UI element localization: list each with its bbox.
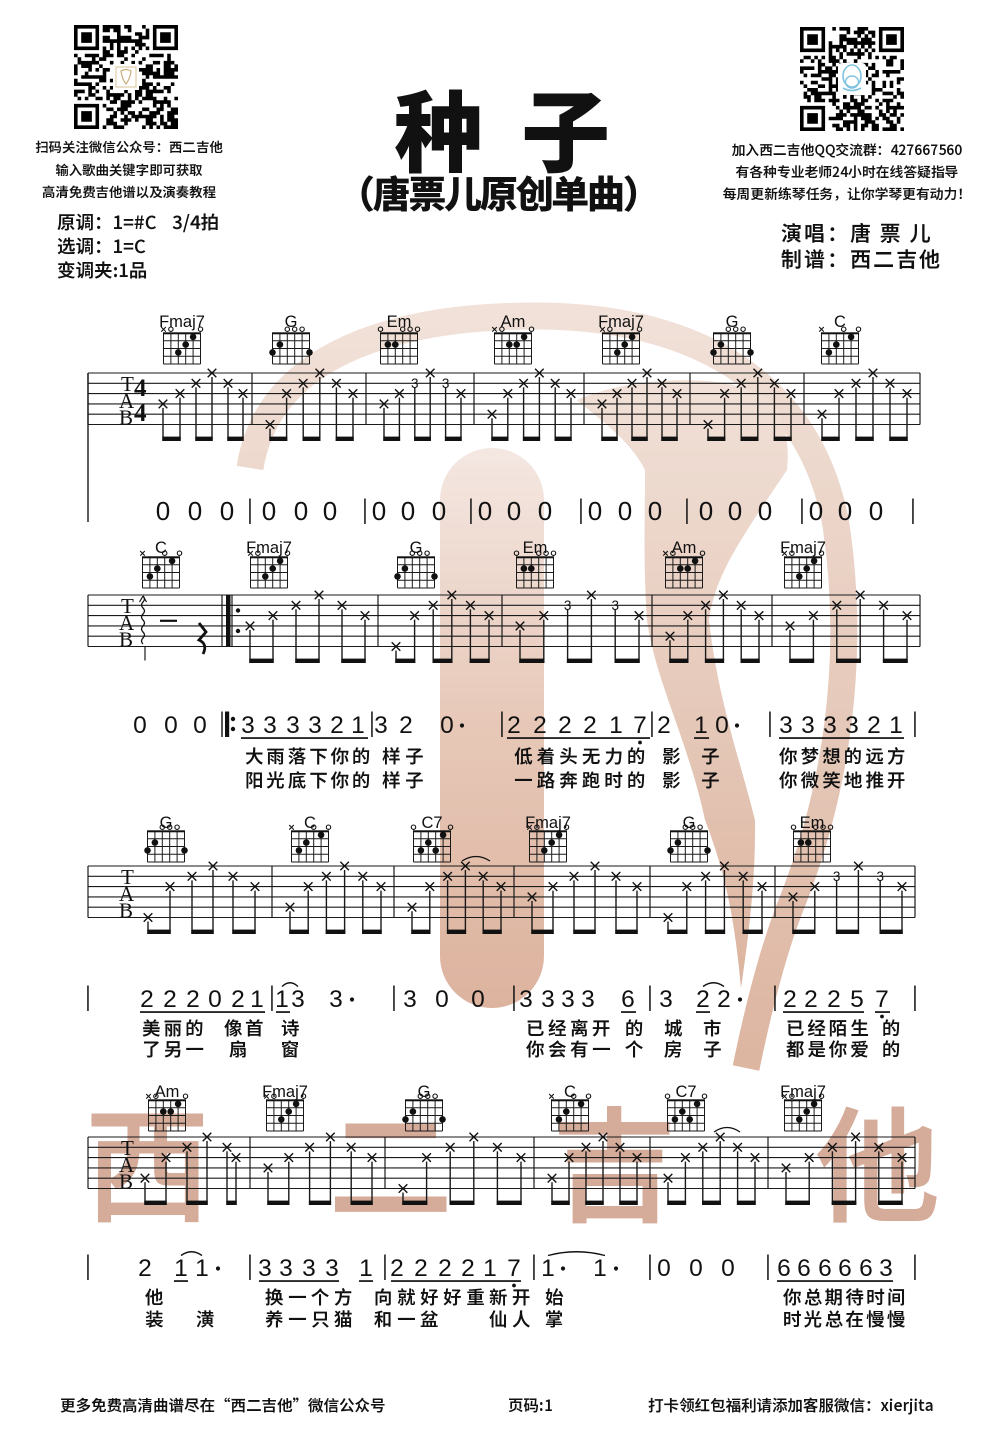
- svg-text:3: 3: [779, 712, 793, 739]
- svg-text:G: G: [726, 313, 739, 331]
- svg-text:奔: 奔: [559, 767, 578, 793]
- svg-text:2: 2: [414, 1255, 428, 1282]
- svg-text:你: 你: [829, 1036, 848, 1062]
- svg-text:2: 2: [330, 712, 344, 739]
- svg-text:时: 时: [783, 1306, 802, 1332]
- svg-text:光: 光: [266, 767, 285, 793]
- svg-text:会: 会: [548, 1036, 567, 1062]
- svg-text:阳: 阳: [245, 767, 264, 793]
- svg-text:你: 你: [779, 767, 798, 793]
- svg-text:好: 好: [443, 1284, 462, 1310]
- svg-text:0: 0: [507, 496, 521, 526]
- svg-text:C: C: [155, 539, 167, 557]
- svg-text:0: 0: [471, 986, 485, 1013]
- svg-text:3/4拍: 3/4拍: [172, 209, 219, 235]
- svg-text:C7: C7: [675, 1083, 696, 1101]
- svg-text:0: 0: [262, 496, 276, 526]
- svg-text:3: 3: [286, 712, 300, 739]
- svg-text:加入西二吉他QQ交流群：427667560: 加入西二吉他QQ交流群：427667560: [731, 139, 962, 159]
- svg-text:页码:1: 页码:1: [508, 1394, 553, 1416]
- svg-text:1: 1: [694, 712, 708, 739]
- svg-text:3: 3: [541, 986, 555, 1013]
- svg-text:想: 想: [822, 743, 841, 769]
- svg-text:笑: 笑: [822, 767, 841, 793]
- svg-text:窗: 窗: [281, 1036, 300, 1062]
- svg-text:爱: 爱: [850, 1036, 869, 1062]
- svg-text:0: 0: [193, 712, 207, 739]
- svg-text:6: 6: [838, 1255, 852, 1282]
- svg-text:有: 有: [570, 1036, 589, 1062]
- svg-text:扫码关注微信公众号：西二吉他: 扫码关注微信公众号：西二吉他: [35, 136, 222, 156]
- svg-text:2: 2: [657, 712, 671, 739]
- svg-text:开: 开: [887, 767, 906, 793]
- svg-text:你: 你: [331, 743, 350, 769]
- svg-text:的: 的: [844, 743, 863, 769]
- svg-text:远: 远: [865, 743, 884, 769]
- svg-text:一: 一: [514, 767, 533, 793]
- svg-text:2: 2: [583, 712, 597, 739]
- svg-text:的: 的: [882, 1036, 901, 1062]
- svg-text:头: 头: [559, 743, 578, 769]
- svg-text:0: 0: [758, 496, 772, 526]
- svg-text:1: 1: [174, 1255, 188, 1282]
- svg-text:人: 人: [512, 1306, 531, 1332]
- svg-text:下: 下: [309, 743, 328, 769]
- svg-text:7: 7: [633, 712, 647, 739]
- svg-text:7: 7: [875, 986, 889, 1013]
- svg-text:的: 的: [352, 767, 371, 793]
- svg-text:1: 1: [250, 986, 264, 1013]
- svg-text:都: 都: [786, 1036, 805, 1062]
- svg-text:低: 低: [514, 743, 533, 769]
- svg-text:你: 你: [779, 743, 798, 769]
- svg-text:0: 0: [188, 496, 202, 526]
- svg-text:0: 0: [809, 496, 823, 526]
- svg-text:时: 时: [604, 767, 623, 793]
- svg-text:梦: 梦: [801, 743, 820, 769]
- svg-text:你: 你: [331, 767, 350, 793]
- svg-text:慢: 慢: [866, 1306, 885, 1332]
- svg-text:2: 2: [696, 986, 710, 1013]
- svg-text:样: 样: [382, 743, 401, 769]
- svg-text:0: 0: [220, 496, 234, 526]
- svg-text:3: 3: [258, 1255, 272, 1282]
- svg-text:1: 1: [483, 1255, 497, 1282]
- svg-text:0: 0: [869, 496, 883, 526]
- svg-text:只: 只: [311, 1306, 330, 1332]
- svg-text:3: 3: [279, 1255, 293, 1282]
- svg-text:1: 1: [275, 986, 289, 1013]
- svg-text:推: 推: [865, 767, 884, 793]
- svg-text:影: 影: [662, 743, 681, 769]
- svg-text:0: 0: [208, 986, 222, 1013]
- svg-text:路: 路: [537, 767, 556, 793]
- svg-text:3: 3: [308, 712, 322, 739]
- svg-text:3: 3: [801, 712, 815, 739]
- svg-text:样: 样: [382, 767, 401, 793]
- svg-text:重: 重: [466, 1284, 485, 1310]
- svg-text:0: 0: [618, 496, 632, 526]
- svg-text:1: 1: [351, 712, 365, 739]
- svg-text:1: 1: [359, 1255, 373, 1282]
- svg-text:0: 0: [689, 1255, 703, 1282]
- svg-text:底: 底: [288, 767, 307, 793]
- svg-text:B: B: [119, 406, 133, 430]
- svg-text:4: 4: [134, 375, 147, 402]
- svg-text:0: 0: [728, 496, 742, 526]
- svg-text:6: 6: [797, 1255, 811, 1282]
- svg-text:另: 另: [164, 1036, 183, 1062]
- svg-text:子: 子: [405, 743, 424, 769]
- svg-text:在: 在: [845, 1306, 864, 1332]
- svg-text:3: 3: [374, 712, 388, 739]
- svg-text:和: 和: [374, 1306, 393, 1332]
- svg-text:仙: 仙: [489, 1306, 508, 1332]
- svg-text:无: 无: [582, 743, 601, 769]
- svg-text:C7: C7: [421, 814, 442, 832]
- svg-text:3: 3: [659, 986, 673, 1013]
- svg-text:0: 0: [715, 712, 729, 739]
- svg-text:方: 方: [887, 743, 906, 769]
- svg-text:猫: 猫: [334, 1306, 353, 1332]
- svg-text:个: 个: [625, 1036, 644, 1062]
- svg-text:7: 7: [507, 1255, 521, 1282]
- svg-text:3: 3: [403, 986, 417, 1013]
- svg-text:6: 6: [777, 1255, 791, 1282]
- svg-text:打卡领红包福利请添加客服微信：xierjita: 打卡领红包福利请添加客服微信：xierjita: [648, 1394, 934, 1416]
- svg-text:0: 0: [588, 496, 602, 526]
- svg-text:变调夹:1品: 变调夹:1品: [57, 257, 147, 283]
- svg-text:0: 0: [721, 1255, 735, 1282]
- svg-text:力: 力: [604, 743, 623, 769]
- svg-text:你: 你: [526, 1036, 545, 1062]
- svg-text:G: G: [410, 539, 423, 557]
- svg-text:1: 1: [609, 712, 623, 739]
- svg-text:有各种专业老师24小时在线答疑指导: 有各种专业老师24小时在线答疑指导: [736, 161, 959, 181]
- svg-text:慢: 慢: [887, 1306, 906, 1332]
- svg-text:0: 0: [323, 496, 337, 526]
- svg-text:2: 2: [533, 712, 547, 739]
- svg-text:0: 0: [657, 1255, 671, 1282]
- svg-text:的: 的: [627, 743, 646, 769]
- svg-text:选调：1=C: 选调：1=C: [57, 233, 146, 259]
- svg-text:0: 0: [838, 496, 852, 526]
- svg-text:C: C: [834, 313, 846, 331]
- svg-text:B: B: [119, 899, 133, 923]
- svg-text:0: 0: [164, 712, 178, 739]
- svg-text:潢: 潢: [196, 1306, 215, 1332]
- svg-text:B: B: [119, 1170, 133, 1194]
- svg-text:2: 2: [783, 986, 797, 1013]
- svg-text:装: 装: [145, 1306, 164, 1332]
- svg-text:3: 3: [325, 1255, 339, 1282]
- svg-text:0: 0: [133, 712, 147, 739]
- svg-text:养: 养: [265, 1306, 284, 1332]
- svg-text:光: 光: [804, 1306, 823, 1332]
- svg-text:2: 2: [138, 1255, 152, 1282]
- svg-text:3: 3: [561, 986, 575, 1013]
- svg-text:3: 3: [845, 712, 859, 739]
- svg-text:0: 0: [401, 496, 415, 526]
- svg-text:0: 0: [294, 496, 308, 526]
- svg-text:2: 2: [867, 712, 881, 739]
- svg-text:B: B: [119, 628, 133, 652]
- svg-text:更多免费高清曲谱尽在“西二吉他”微信公众号: 更多免费高清曲谱尽在“西二吉他”微信公众号: [60, 1394, 386, 1416]
- svg-text:落: 落: [288, 743, 307, 769]
- svg-text:一: 一: [288, 1306, 307, 1332]
- svg-text:子: 子: [701, 767, 720, 793]
- svg-text:2: 2: [558, 712, 572, 739]
- svg-text:0: 0: [435, 986, 449, 1013]
- svg-text:雨: 雨: [266, 743, 285, 769]
- svg-text:3: 3: [879, 1255, 893, 1282]
- svg-text:着: 着: [537, 743, 556, 769]
- svg-text:高清免费吉他谱以及演奏教程: 高清免费吉他谱以及演奏教程: [42, 181, 217, 201]
- svg-text:0: 0: [440, 712, 454, 739]
- svg-text:3: 3: [581, 986, 595, 1013]
- svg-text:2: 2: [717, 986, 731, 1013]
- svg-text:0: 0: [372, 496, 386, 526]
- svg-text:3: 3: [329, 986, 343, 1013]
- svg-text:一: 一: [185, 1036, 204, 1062]
- svg-text:是: 是: [807, 1036, 826, 1062]
- svg-text:4: 4: [134, 400, 147, 427]
- svg-text:3: 3: [519, 986, 533, 1013]
- svg-text:6: 6: [818, 1255, 832, 1282]
- svg-text:制谱：西二吉他: 制谱：西二吉他: [781, 244, 942, 274]
- svg-text:2: 2: [231, 986, 245, 1013]
- svg-text:一: 一: [592, 1036, 611, 1062]
- svg-text:掌: 掌: [545, 1306, 564, 1332]
- svg-text:1: 1: [593, 1255, 607, 1282]
- svg-text:2: 2: [390, 1255, 404, 1282]
- svg-text:Em: Em: [800, 814, 825, 832]
- svg-text:盆: 盆: [420, 1306, 439, 1332]
- svg-text:一: 一: [397, 1306, 416, 1332]
- svg-text:微: 微: [800, 767, 820, 793]
- svg-text:每周更新练琴任务，让你学琴更有动力！: 每周更新练琴任务，让你学琴更有动力！: [723, 183, 971, 203]
- svg-text:0: 0: [478, 496, 492, 526]
- svg-text:地: 地: [844, 767, 863, 793]
- svg-text:5: 5: [850, 986, 864, 1013]
- svg-text:大: 大: [245, 743, 264, 769]
- svg-text:1: 1: [195, 1255, 209, 1282]
- svg-text:输入歌曲关键字即可获取: 输入歌曲关键字即可获取: [55, 159, 203, 179]
- svg-text:原调：1=#C: 原调：1=#C: [57, 209, 157, 235]
- svg-text:1: 1: [889, 712, 903, 739]
- svg-text:（唐票儿原创单曲）: （唐票儿原创单曲）: [337, 164, 658, 219]
- svg-text:扇: 扇: [229, 1036, 248, 1062]
- svg-text:房: 房: [664, 1036, 683, 1062]
- svg-text:Am: Am: [155, 1083, 180, 1101]
- svg-text:0: 0: [648, 496, 662, 526]
- svg-text:G: G: [285, 313, 298, 331]
- svg-text:3: 3: [241, 712, 255, 739]
- svg-text:2: 2: [827, 986, 841, 1013]
- svg-text:3: 3: [302, 1255, 316, 1282]
- svg-text:0: 0: [156, 496, 170, 526]
- svg-text:0: 0: [538, 496, 552, 526]
- svg-text:2: 2: [399, 712, 413, 739]
- svg-text:首: 首: [245, 1015, 264, 1041]
- svg-text:0: 0: [699, 496, 713, 526]
- svg-text:的: 的: [627, 767, 646, 793]
- svg-text:2: 2: [186, 986, 200, 1013]
- svg-text:下: 下: [309, 767, 328, 793]
- svg-text:6: 6: [621, 986, 635, 1013]
- svg-text:子: 子: [405, 767, 424, 793]
- svg-text:了: 了: [142, 1036, 161, 1062]
- svg-text:总: 总: [825, 1306, 844, 1332]
- svg-text:1: 1: [541, 1255, 555, 1282]
- svg-text:的: 的: [352, 743, 371, 769]
- svg-text:3: 3: [291, 986, 305, 1013]
- svg-text:2: 2: [804, 986, 818, 1013]
- svg-text:子: 子: [701, 743, 720, 769]
- svg-text:2: 2: [507, 712, 521, 739]
- svg-text:3: 3: [823, 712, 837, 739]
- svg-text:2: 2: [438, 1255, 452, 1282]
- svg-text:2: 2: [461, 1255, 475, 1282]
- svg-text:影: 影: [662, 767, 681, 793]
- svg-text:6: 6: [859, 1255, 873, 1282]
- svg-text:0: 0: [432, 496, 446, 526]
- svg-text:2: 2: [140, 986, 154, 1013]
- svg-text:子: 子: [703, 1036, 722, 1062]
- svg-text:跑: 跑: [582, 767, 601, 793]
- svg-text:2: 2: [163, 986, 177, 1013]
- svg-text:3: 3: [263, 712, 277, 739]
